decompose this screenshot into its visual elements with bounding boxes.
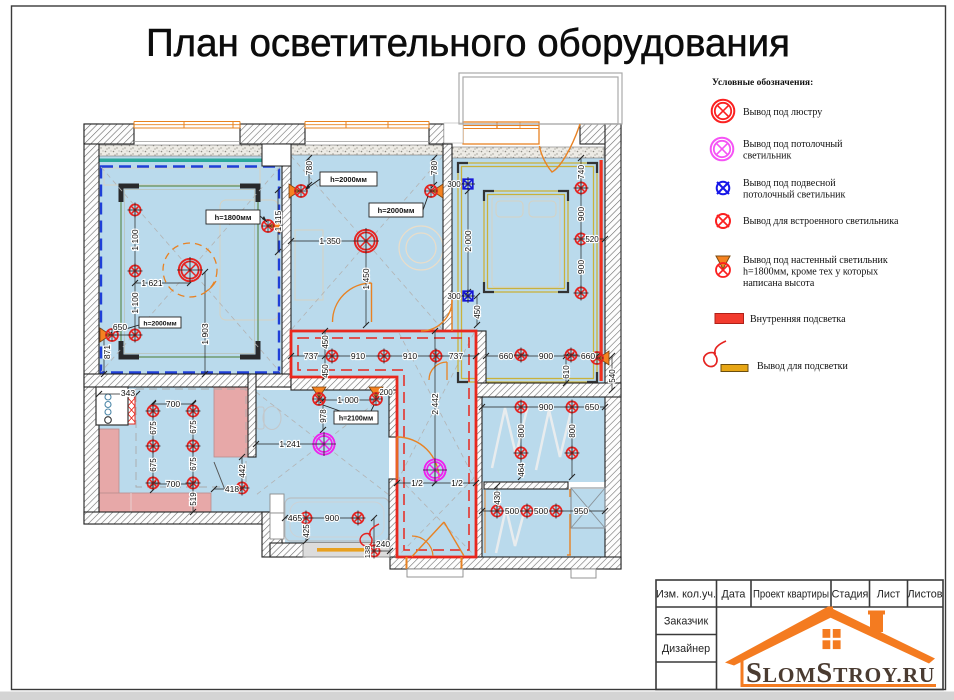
svg-text:675: 675 (189, 420, 198, 434)
svg-text:Вывод под настенный светильник: Вывод под настенный светильник (743, 255, 888, 266)
svg-text:Вывод для встроенного светильн: Вывод для встроенного светильника (743, 216, 899, 227)
svg-text:430: 430 (493, 491, 502, 505)
svg-text:потолочный светильник: потолочный светильник (743, 190, 846, 201)
svg-text:1 350: 1 350 (319, 236, 341, 246)
svg-text:780: 780 (304, 161, 314, 175)
svg-text:План осветительного оборудован: План осветительного оборудования (146, 22, 790, 65)
svg-text:Листов: Листов (907, 589, 942, 601)
svg-text:650: 650 (585, 402, 599, 412)
svg-text:1 903: 1 903 (200, 323, 210, 345)
svg-text:425: 425 (302, 524, 311, 538)
svg-text:660: 660 (581, 351, 595, 361)
svg-text:2 000: 2 000 (463, 230, 473, 252)
svg-text:300: 300 (447, 180, 461, 189)
svg-text:h=2000мм: h=2000мм (378, 206, 415, 215)
svg-text:Внутренняя подсветка: Внутренняя подсветка (750, 314, 846, 325)
svg-text:Дизайнер: Дизайнер (662, 643, 710, 655)
svg-text:780: 780 (429, 161, 439, 175)
svg-text:Лист: Лист (877, 589, 901, 601)
svg-text:675: 675 (149, 421, 158, 435)
svg-text:1 115: 1 115 (273, 210, 283, 231)
svg-text:871: 871 (102, 345, 112, 359)
svg-text:910: 910 (403, 351, 417, 361)
svg-text:450: 450 (473, 305, 482, 319)
svg-text:2 442: 2 442 (430, 393, 440, 415)
svg-text:343: 343 (121, 388, 135, 398)
svg-text:500: 500 (505, 506, 519, 516)
svg-text:800: 800 (568, 424, 577, 438)
svg-text:светильник: светильник (743, 151, 792, 162)
svg-text:138: 138 (363, 546, 372, 559)
svg-text:464: 464 (517, 463, 526, 477)
svg-text:700: 700 (166, 479, 180, 489)
svg-text:900: 900 (539, 402, 553, 412)
svg-text:450: 450 (321, 335, 330, 349)
svg-text:465: 465 (288, 513, 302, 523)
svg-text:540: 540 (608, 369, 617, 383)
svg-text:Вывод под люстру: Вывод под люстру (743, 107, 822, 118)
svg-text:h=2000мм: h=2000мм (330, 175, 367, 184)
svg-text:610: 610 (562, 365, 571, 379)
svg-text:Вывод под потолочный: Вывод под потолочный (743, 139, 843, 150)
svg-text:800: 800 (517, 424, 526, 438)
svg-text:700: 700 (166, 399, 180, 409)
svg-text:519: 519 (189, 492, 198, 506)
svg-text:737: 737 (449, 351, 463, 361)
svg-text:650: 650 (113, 322, 127, 332)
svg-text:Проект квартиры: Проект квартиры (753, 589, 829, 601)
svg-text:Вывод для подсветки: Вывод для подсветки (757, 361, 848, 372)
svg-text:Условные обозначения:: Условные обозначения: (712, 77, 813, 88)
svg-text:написана высота: написана высота (743, 278, 815, 289)
svg-text:1/2: 1/2 (451, 478, 463, 488)
svg-text:1 000: 1 000 (337, 395, 359, 405)
svg-text:Стадия: Стадия (832, 589, 869, 601)
svg-text:450: 450 (321, 364, 330, 378)
svg-text:Заказчик: Заказчик (664, 616, 709, 628)
svg-text:1 100: 1 100 (130, 229, 140, 251)
svg-text:1 450: 1 450 (361, 268, 371, 290)
svg-text:900: 900 (576, 207, 586, 221)
svg-text:740: 740 (576, 165, 586, 179)
svg-text:SLOMSTROY.RU: SLOMSTROY.RU (746, 658, 935, 689)
svg-text:442: 442 (238, 464, 247, 478)
svg-text:660: 660 (499, 351, 513, 361)
svg-text:1/2: 1/2 (411, 478, 423, 488)
svg-text:910: 910 (351, 351, 365, 361)
svg-text:Вывод под подвесной: Вывод под подвесной (743, 178, 836, 189)
svg-text:1 241: 1 241 (279, 439, 301, 449)
svg-text:737: 737 (304, 351, 318, 361)
svg-text:900: 900 (325, 513, 339, 523)
svg-text:240: 240 (376, 539, 390, 549)
svg-text:h=1800мм: h=1800мм (215, 213, 252, 222)
svg-text:520: 520 (585, 235, 599, 244)
svg-text:h=2100мм: h=2100мм (339, 415, 373, 422)
svg-text:200: 200 (379, 388, 393, 397)
svg-text:Изм. кол.уч.: Изм. кол.уч. (656, 589, 716, 601)
svg-text:1 621: 1 621 (141, 278, 163, 288)
svg-text:675: 675 (149, 458, 158, 472)
svg-text:675: 675 (189, 457, 198, 471)
svg-text:1 100: 1 100 (130, 292, 140, 314)
svg-text:978: 978 (319, 409, 328, 423)
svg-text:500: 500 (534, 506, 548, 516)
svg-text:h=2000мм: h=2000мм (143, 320, 176, 327)
svg-text:950: 950 (574, 506, 588, 516)
svg-text:Дата: Дата (722, 589, 746, 601)
svg-text:900: 900 (576, 260, 586, 274)
svg-text:418: 418 (225, 484, 239, 494)
svg-text:300: 300 (447, 292, 461, 301)
svg-text:h=1800мм, кроме тех у которых: h=1800мм, кроме тех у которых (743, 267, 878, 278)
svg-text:900: 900 (539, 351, 553, 361)
